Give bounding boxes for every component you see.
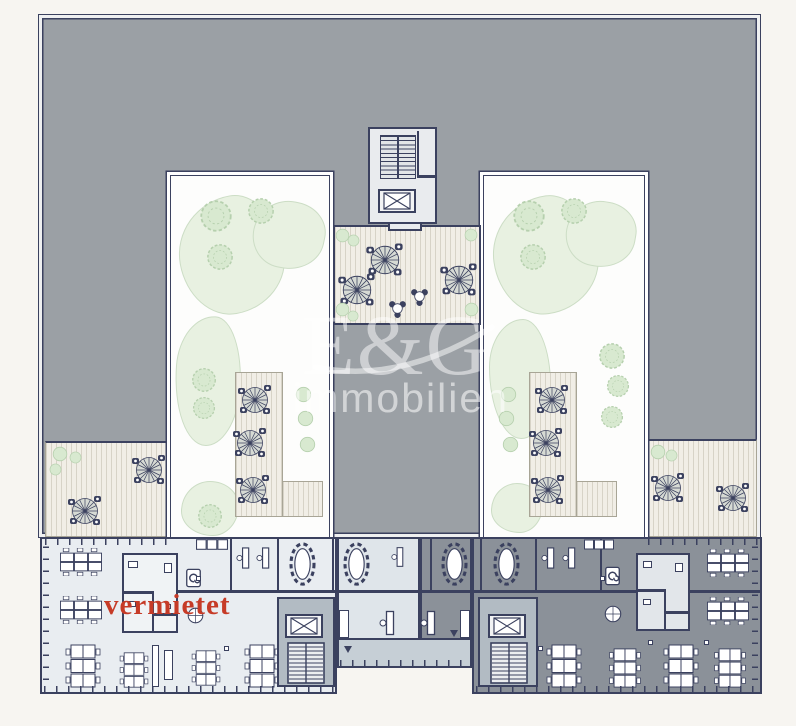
- tree-icon: [512, 199, 546, 233]
- bush-icon: [299, 436, 316, 453]
- elevator-icon: [488, 614, 526, 638]
- bush-icon: [347, 234, 360, 247]
- shelf-unit: [460, 610, 470, 638]
- tree-icon: [600, 405, 624, 429]
- interior-wall: [638, 589, 666, 592]
- bench-desks-icon: [189, 650, 223, 686]
- single-desk-icon: [541, 546, 555, 570]
- tree-icon: [598, 342, 626, 370]
- interior-wall: [417, 131, 419, 177]
- facade-windows: [476, 686, 758, 692]
- shelf-unit: [164, 650, 173, 680]
- umbrella-table-icon: [233, 470, 273, 510]
- bench-desks-icon: [242, 644, 282, 688]
- facade-windows: [648, 539, 758, 545]
- column: [196, 576, 201, 581]
- single-desk-icon: [562, 546, 576, 570]
- facade-windows: [45, 539, 167, 545]
- bench-desks-icon: [704, 597, 752, 625]
- umbrella-table-icon: [235, 380, 275, 420]
- umbrella-table-icon: [437, 258, 481, 302]
- left-stair-core: [277, 597, 335, 687]
- bench-desks-icon: [63, 644, 103, 688]
- whiteboard: [152, 645, 159, 687]
- kitchen-units-icon: [196, 539, 228, 550]
- bench-desks-icon: [117, 652, 151, 688]
- service-room-block: [636, 553, 690, 631]
- fixture: [643, 561, 652, 568]
- rooftop-stair-block: [368, 127, 437, 224]
- column: [704, 640, 709, 645]
- elevator-icon: [285, 614, 323, 638]
- facade-windows: [752, 545, 758, 680]
- bench-desks-icon: [607, 648, 643, 688]
- interior-wall: [535, 539, 537, 591]
- oval-meeting-table-icon: [441, 541, 468, 587]
- oval-meeting-table-icon: [343, 541, 370, 587]
- bench-desks-icon: [661, 644, 701, 688]
- bush-icon: [464, 228, 478, 242]
- facade-windows: [44, 686, 334, 692]
- courtyard-terrace: [283, 481, 323, 517]
- oval-meeting-table-icon: [289, 541, 316, 587]
- tree-icon: [191, 367, 217, 393]
- bench-desks-icon: [58, 596, 104, 624]
- right-stair-core: [478, 597, 538, 687]
- interior-wall: [417, 175, 435, 178]
- facade-windows: [340, 660, 470, 666]
- tree-icon: [560, 197, 588, 225]
- spiral-stairs-icon: [605, 566, 620, 586]
- interior-wall: [430, 539, 432, 591]
- single-desk-icon: [236, 546, 250, 570]
- tree-icon: [197, 503, 223, 529]
- elevator-icon: [378, 189, 416, 213]
- courtyard-terrace: [577, 481, 617, 517]
- interior-wall: [277, 539, 279, 591]
- column: [224, 646, 229, 651]
- column: [538, 646, 543, 651]
- bench-desks-icon: [544, 644, 584, 688]
- interior-wall: [230, 539, 232, 591]
- umbrella-table-icon: [230, 423, 270, 463]
- single-desk-icon: [420, 606, 436, 640]
- bush-icon: [69, 451, 82, 464]
- door-swing-icon: [450, 630, 458, 637]
- stairs-icon: [287, 642, 325, 684]
- floor-plan-canvas: vermietet E&G immobilien: [0, 0, 796, 726]
- interior-wall: [664, 611, 688, 614]
- fixture: [643, 599, 651, 605]
- column: [648, 640, 653, 645]
- bench-desks-icon: [712, 648, 748, 688]
- interior-wall: [664, 589, 666, 629]
- bush-icon: [502, 436, 519, 453]
- umbrella-table-icon: [532, 380, 572, 420]
- interior-wall: [332, 539, 334, 591]
- umbrella-table-icon: [648, 468, 688, 508]
- bush-icon: [52, 446, 68, 462]
- tree-icon: [192, 396, 216, 420]
- stair-rail: [397, 135, 399, 179]
- watermark-subtitle-text: immobilien: [293, 378, 499, 419]
- tree-icon: [519, 243, 547, 271]
- bench-desks-icon: [704, 549, 752, 577]
- shelf-unit: [339, 610, 349, 638]
- oval-meeting-table-icon: [493, 541, 520, 587]
- umbrella-table-icon: [528, 470, 568, 510]
- kitchen-units-icon: [584, 539, 614, 550]
- umbrella-table-icon: [526, 423, 566, 463]
- bush-icon: [665, 449, 678, 462]
- door-swing-icon: [344, 646, 352, 653]
- tree-icon: [247, 197, 275, 225]
- interior-wall: [480, 539, 482, 591]
- single-desk-icon: [256, 546, 270, 570]
- umbrella-table-icon: [129, 450, 169, 490]
- column: [600, 576, 605, 581]
- facade-windows: [43, 545, 49, 680]
- bench-desks-icon: [58, 548, 104, 576]
- tree-icon: [199, 199, 233, 233]
- umbrella-table-icon: [65, 491, 105, 531]
- single-desk-icon: [379, 606, 395, 640]
- tree-icon: [606, 374, 630, 398]
- fixture: [164, 563, 172, 573]
- bush-icon: [49, 463, 62, 476]
- bush-icon: [650, 444, 666, 460]
- stairs-icon: [490, 642, 528, 684]
- tree-icon: [206, 243, 234, 271]
- umbrella-table-icon: [713, 478, 753, 518]
- status-label-rented: vermietet: [104, 589, 231, 622]
- round-table-icon: [604, 605, 622, 623]
- fixture: [675, 563, 683, 572]
- single-desk-icon: [391, 546, 404, 568]
- fixture: [128, 561, 138, 568]
